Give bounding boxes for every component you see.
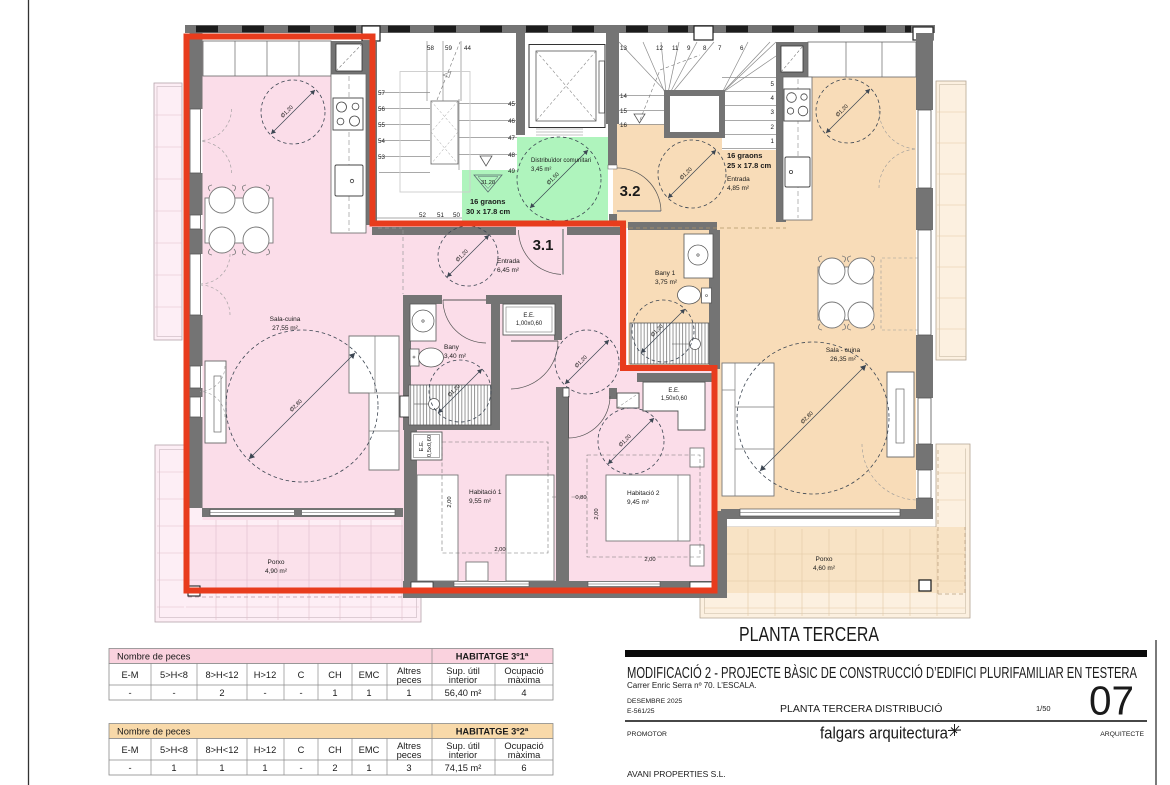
svg-text:1: 1 xyxy=(171,763,176,773)
svg-text:E.E.: E.E. xyxy=(523,313,535,319)
svg-text:57: 57 xyxy=(378,90,385,97)
svg-text:4,90 m²: 4,90 m² xyxy=(265,568,288,575)
svg-text:4,60 m²: 4,60 m² xyxy=(813,565,836,572)
svg-text:Entrada: Entrada xyxy=(727,176,750,183)
svg-text:1,00x0,60: 1,00x0,60 xyxy=(516,321,543,327)
svg-text:HABITATGE 3º1ª: HABITATGE 3º1ª xyxy=(456,652,529,662)
svg-text:1: 1 xyxy=(262,763,267,773)
svg-text:E-561/25: E-561/25 xyxy=(627,708,655,715)
svg-text:Sala-cuina: Sala-cuina xyxy=(270,316,301,323)
svg-text:Nombre de peces: Nombre de peces xyxy=(117,727,191,737)
svg-text:25 x 17.8 cm: 25 x 17.8 cm xyxy=(727,161,772,170)
svg-text:5>H<8: 5>H<8 xyxy=(160,670,188,680)
svg-text:2,00: 2,00 xyxy=(594,508,600,519)
svg-text:59: 59 xyxy=(445,45,452,52)
svg-text:44: 44 xyxy=(464,45,471,52)
svg-text:7: 7 xyxy=(718,45,722,52)
svg-text:3,40 m²: 3,40 m² xyxy=(444,353,467,360)
svg-text:5>H<8: 5>H<8 xyxy=(160,745,188,755)
svg-text:-: - xyxy=(263,688,266,698)
svg-text:9,55 m²: 9,55 m² xyxy=(469,498,492,505)
svg-text:CH: CH xyxy=(328,745,341,755)
svg-text:1: 1 xyxy=(219,763,224,773)
svg-text:26,35 m²: 26,35 m² xyxy=(830,356,856,363)
svg-text:PLANTA TERCERA DISTRIBUCIÓ: PLANTA TERCERA DISTRIBUCIÓ xyxy=(780,702,942,715)
svg-text:Carrer Enric Serra nº 70. L’ES: Carrer Enric Serra nº 70. L’ESCALA. xyxy=(627,681,757,690)
svg-text:peces: peces xyxy=(397,750,422,760)
svg-text:Habitació 2: Habitació 2 xyxy=(627,490,660,497)
svg-text:4,85 m²: 4,85 m² xyxy=(727,185,750,192)
svg-text:màxima: màxima xyxy=(508,750,541,760)
svg-text:-: - xyxy=(299,688,302,698)
svg-text:3,45 m²: 3,45 m² xyxy=(531,167,551,173)
svg-text:4: 4 xyxy=(521,688,526,698)
svg-text:PLANTA TERCERA: PLANTA TERCERA xyxy=(739,623,879,646)
svg-text:EMC: EMC xyxy=(359,670,380,680)
svg-text:15: 15 xyxy=(620,108,627,115)
svg-text:interior: interior xyxy=(449,675,477,685)
svg-text:6: 6 xyxy=(740,45,744,52)
svg-text:CH: CH xyxy=(328,670,341,680)
svg-text:1/50: 1/50 xyxy=(1036,704,1051,713)
svg-text:8>H<12: 8>H<12 xyxy=(205,745,238,755)
svg-text:Bany: Bany xyxy=(444,344,460,351)
svg-text:1: 1 xyxy=(332,688,337,698)
svg-text:8: 8 xyxy=(703,45,707,52)
svg-text:Bany 1: Bany 1 xyxy=(655,270,676,277)
svg-text:E-M: E-M xyxy=(121,745,138,755)
svg-text:Porxo: Porxo xyxy=(268,559,285,566)
svg-text:peces: peces xyxy=(397,675,422,685)
svg-text:falgars arquitectura: falgars arquitectura xyxy=(820,724,948,743)
svg-text:30 x 17.8 cm: 30 x 17.8 cm xyxy=(466,207,511,216)
svg-text:07: 07 xyxy=(1089,678,1134,724)
svg-text:1: 1 xyxy=(366,763,371,773)
svg-text:52: 52 xyxy=(419,212,426,219)
svg-text:2,00: 2,00 xyxy=(644,557,655,563)
svg-text:1: 1 xyxy=(771,138,775,145)
svg-text:Nombre de peces: Nombre de peces xyxy=(117,652,191,662)
svg-text:9,45 m²: 9,45 m² xyxy=(627,499,650,506)
svg-text:0,80: 0,80 xyxy=(575,495,586,501)
svg-text:6: 6 xyxy=(521,763,526,773)
svg-text:14: 14 xyxy=(620,93,627,100)
svg-text:E.E.: E.E. xyxy=(668,388,680,394)
svg-text:46: 46 xyxy=(508,118,515,125)
svg-text:54: 54 xyxy=(378,138,385,145)
svg-text:-: - xyxy=(128,763,131,773)
svg-text:E-M: E-M xyxy=(121,670,138,680)
svg-text:ARQUITECTE: ARQUITECTE xyxy=(1100,731,1144,738)
svg-text:HABITATGE 3º2ª: HABITATGE 3º2ª xyxy=(456,727,529,737)
svg-text:Entrada: Entrada xyxy=(497,258,520,265)
svg-text:1: 1 xyxy=(366,688,371,698)
svg-text:-: - xyxy=(172,688,175,698)
svg-text:1,50x0,60: 1,50x0,60 xyxy=(661,396,688,402)
svg-text:47: 47 xyxy=(508,135,515,142)
svg-text:13: 13 xyxy=(620,45,627,52)
svg-text:50: 50 xyxy=(453,212,460,219)
svg-text:AVANI PROPERTIES S.L.: AVANI PROPERTIES S.L. xyxy=(627,769,726,779)
svg-text:9: 9 xyxy=(687,45,691,52)
svg-text:Porxo: Porxo xyxy=(816,556,833,563)
svg-text:53: 53 xyxy=(378,154,385,161)
svg-text:2: 2 xyxy=(332,763,337,773)
svg-text:31,20: 31,20 xyxy=(481,180,495,186)
svg-text:3: 3 xyxy=(771,109,775,116)
svg-text:Sala - cuina: Sala - cuina xyxy=(826,347,861,354)
svg-text:56: 56 xyxy=(378,106,385,113)
svg-text:45: 45 xyxy=(508,101,515,108)
svg-text:1: 1 xyxy=(406,688,411,698)
svg-text:-: - xyxy=(128,688,131,698)
svg-text:2,00: 2,00 xyxy=(494,547,505,553)
svg-text:Habitació 1: Habitació 1 xyxy=(469,489,502,496)
svg-text:4: 4 xyxy=(771,95,775,102)
svg-text:74,15 m²: 74,15 m² xyxy=(445,763,482,773)
svg-text:interior: interior xyxy=(449,750,477,760)
svg-text:3,75 m²: 3,75 m² xyxy=(655,279,678,286)
svg-text:56,40 m²: 56,40 m² xyxy=(445,688,482,698)
svg-text:C: C xyxy=(298,670,305,680)
svg-text:49: 49 xyxy=(508,168,515,175)
svg-text:58: 58 xyxy=(427,45,434,52)
svg-text:3.2: 3.2 xyxy=(620,183,641,200)
svg-text:16: 16 xyxy=(620,122,627,129)
svg-text:8>H<12: 8>H<12 xyxy=(205,670,238,680)
svg-text:5: 5 xyxy=(771,81,775,88)
svg-text:DESEMBRE 2025: DESEMBRE 2025 xyxy=(627,698,682,705)
svg-text:2: 2 xyxy=(771,124,775,131)
svg-text:3.1: 3.1 xyxy=(533,237,554,254)
svg-text:H>12: H>12 xyxy=(254,745,276,755)
svg-text:E.E.: E.E. xyxy=(419,440,425,451)
svg-text:PROMOTOR: PROMOTOR xyxy=(627,731,667,738)
svg-text:2: 2 xyxy=(219,688,224,698)
svg-text:3: 3 xyxy=(406,763,411,773)
svg-text:0,5x0,60: 0,5x0,60 xyxy=(427,435,433,457)
svg-text:-: - xyxy=(299,763,302,773)
svg-text:55: 55 xyxy=(378,122,385,129)
svg-text:C: C xyxy=(298,745,305,755)
svg-text:16 graons: 16 graons xyxy=(470,197,505,206)
svg-text:MODIFICACIÓ 2 - PROJECTE BÀSIC: MODIFICACIÓ 2 - PROJECTE BÀSIC DE CONSTR… xyxy=(627,663,1137,682)
svg-text:H>12: H>12 xyxy=(254,670,276,680)
svg-text:48: 48 xyxy=(508,152,515,159)
svg-text:12: 12 xyxy=(656,45,663,52)
svg-text:2,00: 2,00 xyxy=(447,496,453,507)
svg-text:6,45 m²: 6,45 m² xyxy=(497,267,520,274)
svg-text:màxima: màxima xyxy=(508,675,541,685)
svg-text:Distribuïdor comunitari: Distribuïdor comunitari xyxy=(531,158,591,164)
svg-text:51: 51 xyxy=(437,212,444,219)
svg-text:EMC: EMC xyxy=(359,745,380,755)
svg-text:27,55 m²: 27,55 m² xyxy=(272,325,298,332)
svg-text:11: 11 xyxy=(672,45,679,52)
svg-text:16 graons: 16 graons xyxy=(727,151,762,160)
